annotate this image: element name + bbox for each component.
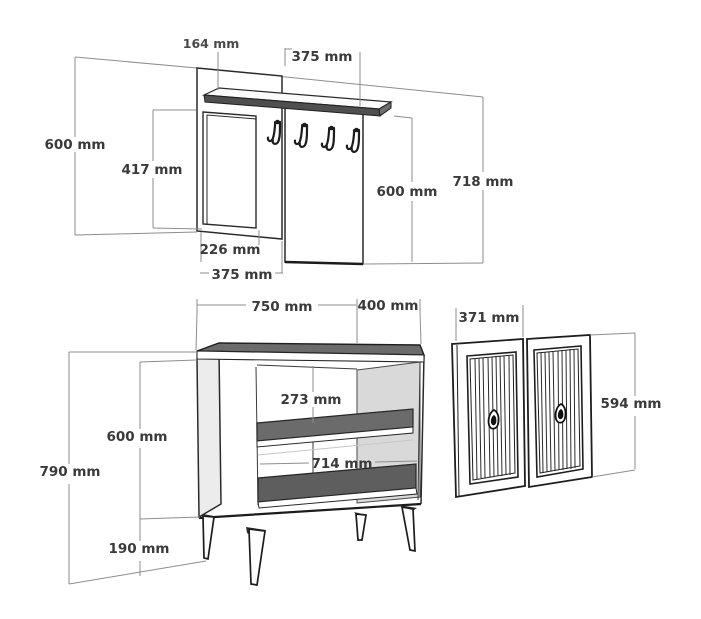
- dim-label-cabinet-total-height: 790 mm: [39, 464, 100, 480]
- dimension-diagram: 164 mm 375 mm 600 mm 417 mm 600 mm 718 m…: [0, 0, 701, 619]
- dim-label-opening-height: 273 mm: [280, 392, 341, 408]
- cabinet-bottom-edge: [199, 504, 421, 518]
- diagram-svg: 164 mm 375 mm 600 mm 417 mm 600 mm 718 m…: [0, 0, 701, 619]
- leg-front-right: [402, 507, 415, 551]
- door-left: [452, 339, 525, 497]
- cabinet-left-panel: [197, 351, 221, 517]
- mirror: [203, 112, 256, 228]
- wall-unit-drawing: [75, 57, 483, 264]
- opening-top-edge: [257, 365, 357, 369]
- dim-label-mirror-width: 226 mm: [199, 242, 260, 258]
- leg-front-left: [249, 529, 265, 585]
- cabinet-legs: [203, 505, 417, 585]
- leg-back-left: [203, 516, 214, 559]
- dim-label-mirror-height: 417 mm: [121, 162, 182, 178]
- dim-label-body-height: 600 mm: [106, 429, 167, 445]
- dim-label-mirror-panel-width: 375 mm: [211, 267, 272, 283]
- dim-label-hook-panel-width: 375 mm: [291, 49, 352, 65]
- doors-drawing: [452, 335, 592, 497]
- cabinet-right-edge: [421, 355, 424, 504]
- dim-label-shelf-depth: 164 mm: [183, 36, 240, 51]
- leg-back-right: [356, 514, 366, 540]
- dim-label-leg-height: 190 mm: [108, 541, 169, 557]
- hook-panel: [285, 101, 363, 264]
- dim-label-total-height: 718 mm: [452, 174, 513, 190]
- dim-label-panel-height: 600 mm: [376, 184, 437, 200]
- door-handle-icon: [556, 404, 566, 423]
- dim-label-door-height: 594 mm: [600, 396, 661, 412]
- dim-label-inner-width: 714 mm: [311, 456, 372, 472]
- dim-label-back-height: 600 mm: [44, 137, 105, 153]
- door-handle-icon: [489, 410, 499, 429]
- dim-label-door-width: 371 mm: [458, 310, 519, 326]
- dim-label-cabinet-depth: 400 mm: [357, 298, 418, 314]
- door-right: [527, 335, 592, 487]
- dim-label-cabinet-width: 750 mm: [251, 299, 312, 315]
